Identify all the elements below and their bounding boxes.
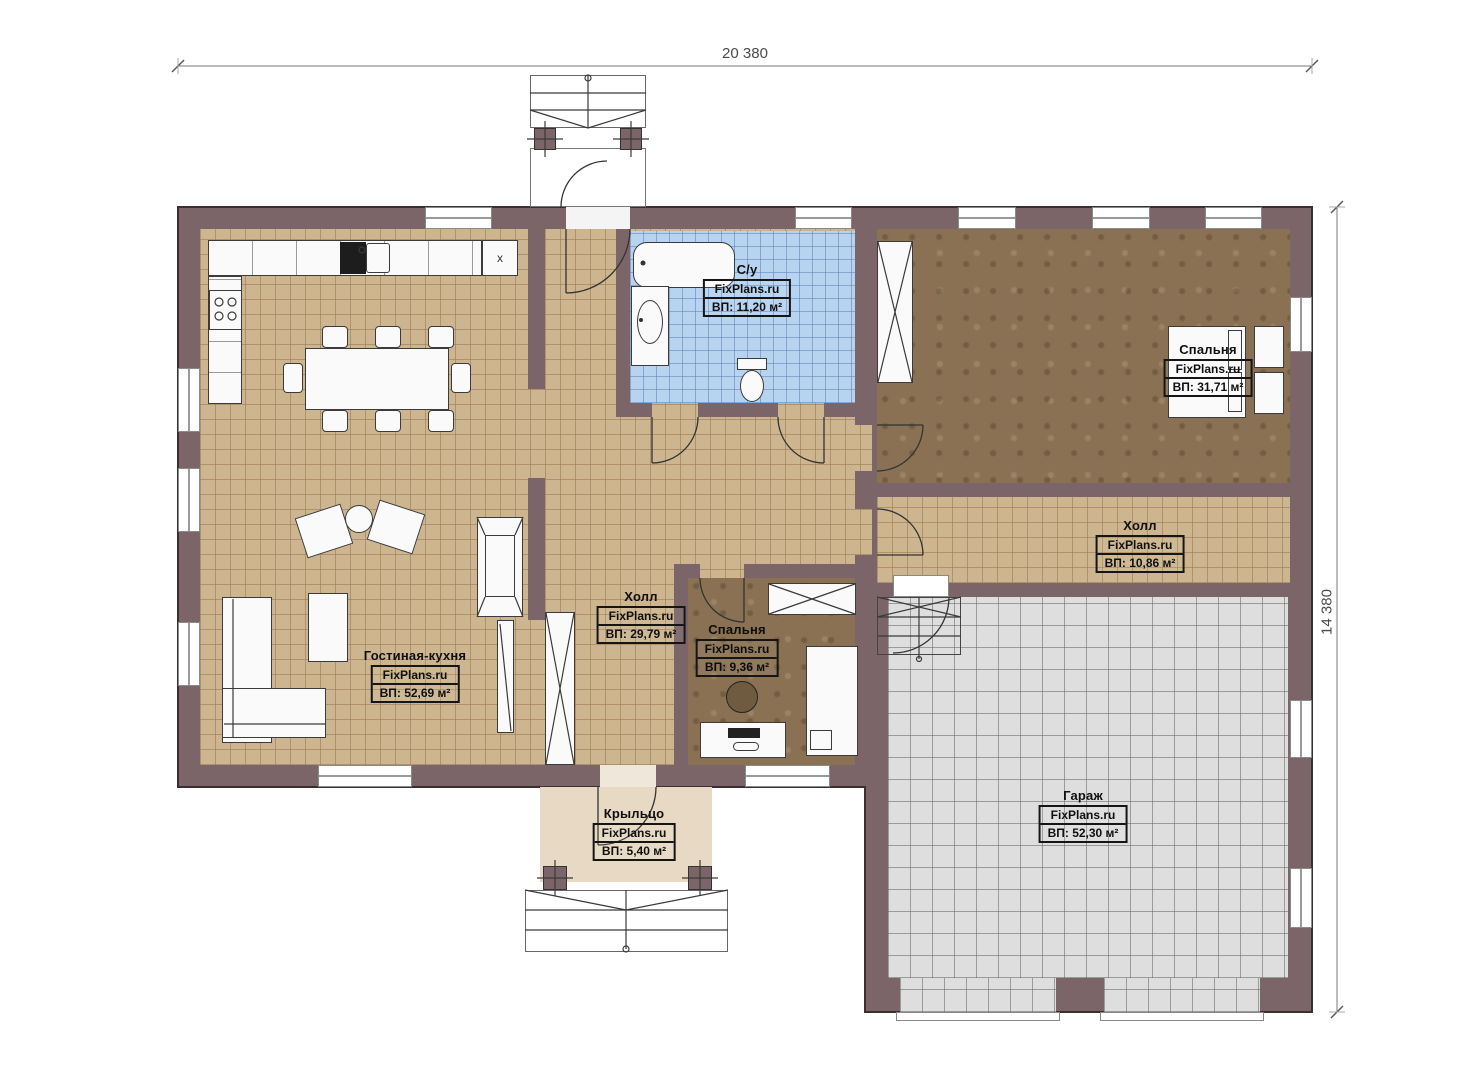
- bathroom-wall-left: [616, 229, 630, 417]
- room-label-porch: Крыльцо FixPlans.ru ВП: 5,40 м²: [593, 806, 676, 861]
- garage-door-opening-right: [1104, 978, 1260, 1012]
- room-info-box: FixPlans.ru ВП: 9,36 м²: [696, 639, 779, 677]
- entrance-landing: [530, 148, 646, 207]
- room-name: Гостиная-кухня: [364, 648, 466, 663]
- bedroom-hall-wall: [877, 483, 1290, 497]
- kitchen-sink: [366, 243, 390, 273]
- kitchen-cabinet-mark: x: [497, 251, 503, 265]
- bath-sink: [637, 300, 663, 344]
- garage-door-opening-left: [900, 978, 1056, 1012]
- brand-text: FixPlans.ru: [1166, 361, 1251, 379]
- brand-text: FixPlans.ru: [698, 641, 777, 659]
- room-label-garage: Гараж FixPlans.ru ВП: 52,30 м²: [1039, 788, 1128, 843]
- porch-post: [534, 128, 556, 150]
- nightstand: [1254, 326, 1284, 368]
- garage-stairs: [877, 597, 961, 655]
- area-text: ВП: 11,20 м²: [705, 299, 789, 315]
- area-text: ВП: 52,69 м²: [373, 685, 458, 701]
- window: [425, 207, 492, 229]
- porch-post: [688, 866, 712, 890]
- living-hall-partition: [528, 478, 545, 620]
- nightstand: [1254, 372, 1284, 414]
- keyboard: [733, 742, 759, 751]
- area-text: ВП: 9,36 м²: [698, 659, 777, 675]
- dining-chair: [322, 410, 348, 432]
- window: [178, 468, 200, 532]
- window: [1290, 868, 1312, 928]
- bathroom-wall-bottom: [616, 403, 652, 417]
- room-info-box: FixPlans.ru ВП: 31,71 м²: [1164, 359, 1253, 397]
- dimension-height-label: 14 380: [1319, 589, 1336, 635]
- hall-right-floor: [877, 497, 1290, 583]
- window: [958, 207, 1016, 229]
- dining-chair: [428, 326, 454, 348]
- area-text: ВП: 29,79 м²: [599, 626, 684, 642]
- kitchen-cabinet-x: x: [482, 240, 518, 276]
- pillow: [810, 730, 832, 750]
- room-name: Холл: [597, 589, 686, 604]
- toilet-bowl: [740, 370, 764, 402]
- area-text: ВП: 5,40 м²: [595, 843, 674, 859]
- central-wall: [855, 555, 877, 765]
- room-name: Крыльцо: [593, 806, 676, 821]
- floor-plan-sheet: x: [0, 0, 1473, 1080]
- room-label-bedroom-main: Спальня FixPlans.ru ВП: 31,71 м²: [1164, 342, 1253, 397]
- monitor: [728, 728, 760, 738]
- dining-chair: [322, 326, 348, 348]
- desk-chair: [726, 681, 758, 713]
- dining-chair: [451, 363, 471, 393]
- brand-text: FixPlans.ru: [1098, 537, 1183, 555]
- window: [745, 765, 830, 787]
- window: [795, 207, 852, 229]
- room-name: Гараж: [1039, 788, 1128, 803]
- brand-text: FixPlans.ru: [373, 667, 458, 685]
- room-label-bedroom-small: Спальня FixPlans.ru ВП: 9,36 м²: [696, 622, 779, 677]
- entrance-steps: [530, 75, 646, 128]
- room-info-box: FixPlans.ru ВП: 11,20 м²: [703, 279, 791, 317]
- window: [178, 368, 200, 432]
- dimension-width-label: 20 380: [722, 45, 768, 62]
- stove: [209, 290, 242, 330]
- area-text: ВП: 52,30 м²: [1041, 825, 1126, 841]
- bedroom-small-wall-top: [688, 564, 700, 578]
- room-info-box: FixPlans.ru ВП: 52,69 м²: [371, 665, 460, 703]
- entrance-door-opening: [566, 207, 630, 229]
- brand-text: FixPlans.ru: [599, 608, 684, 626]
- porch-steps: [525, 890, 728, 952]
- wardrobe: [768, 583, 856, 615]
- porch-post: [620, 128, 642, 150]
- window: [1290, 700, 1312, 758]
- room-name: Холл: [1096, 518, 1185, 533]
- hall-garage-wall: [877, 583, 893, 597]
- tv-stand: [497, 620, 514, 733]
- room-label-hall-main: Холл FixPlans.ru ВП: 29,79 м²: [597, 589, 686, 644]
- porch-post: [543, 866, 567, 890]
- window: [1205, 207, 1262, 229]
- brand-text: FixPlans.ru: [1041, 807, 1126, 825]
- living-hall-partition: [528, 229, 545, 389]
- window: [318, 765, 412, 787]
- central-wall: [855, 471, 877, 509]
- room-name: С/у: [703, 262, 791, 277]
- room-name: Спальня: [696, 622, 779, 637]
- toilet-tank: [737, 358, 767, 370]
- garage-threshold: [1100, 1012, 1264, 1021]
- room-label-living-kitchen: Гостиная-кухня FixPlans.ru ВП: 52,69 м²: [364, 648, 466, 703]
- coffee-table: [308, 593, 348, 662]
- bedroom-small-wall-top: [744, 564, 858, 578]
- wardrobe: [877, 241, 913, 383]
- dining-chair: [375, 326, 401, 348]
- window: [1290, 297, 1312, 352]
- brand-text: FixPlans.ru: [595, 825, 674, 843]
- garage-stair-landing: [893, 575, 949, 597]
- side-table-round: [345, 505, 373, 533]
- kitchen-sink-drainer: [340, 242, 366, 274]
- window: [1092, 207, 1150, 229]
- fireplace-inner: [485, 535, 515, 597]
- sofa: [222, 688, 326, 738]
- bathroom-wall-bottom: [824, 403, 858, 417]
- dining-chair: [283, 363, 303, 393]
- hall-garage-wall: [949, 583, 1290, 597]
- porch-door-opening: [600, 765, 656, 787]
- room-info-box: FixPlans.ru ВП: 29,79 м²: [597, 606, 686, 644]
- room-info-box: FixPlans.ru ВП: 52,30 м²: [1039, 805, 1128, 843]
- dining-table: [305, 348, 449, 410]
- area-text: ВП: 31,71 м²: [1166, 379, 1251, 395]
- room-label-hall-right: Холл FixPlans.ru ВП: 10,86 м²: [1096, 518, 1185, 573]
- room-name: Спальня: [1164, 342, 1253, 357]
- room-info-box: FixPlans.ru ВП: 5,40 м²: [593, 823, 676, 861]
- hall-wardrobe: [545, 612, 575, 765]
- dining-chair: [428, 410, 454, 432]
- room-label-bathroom: С/у FixPlans.ru ВП: 11,20 м²: [703, 262, 791, 317]
- dining-chair: [375, 410, 401, 432]
- bathroom-wall-bottom: [698, 403, 778, 417]
- brand-text: FixPlans.ru: [705, 281, 789, 299]
- garage-threshold: [896, 1012, 1060, 1021]
- central-wall: [855, 229, 877, 425]
- window: [178, 622, 200, 686]
- room-info-box: FixPlans.ru ВП: 10,86 м²: [1096, 535, 1185, 573]
- area-text: ВП: 10,86 м²: [1098, 555, 1183, 571]
